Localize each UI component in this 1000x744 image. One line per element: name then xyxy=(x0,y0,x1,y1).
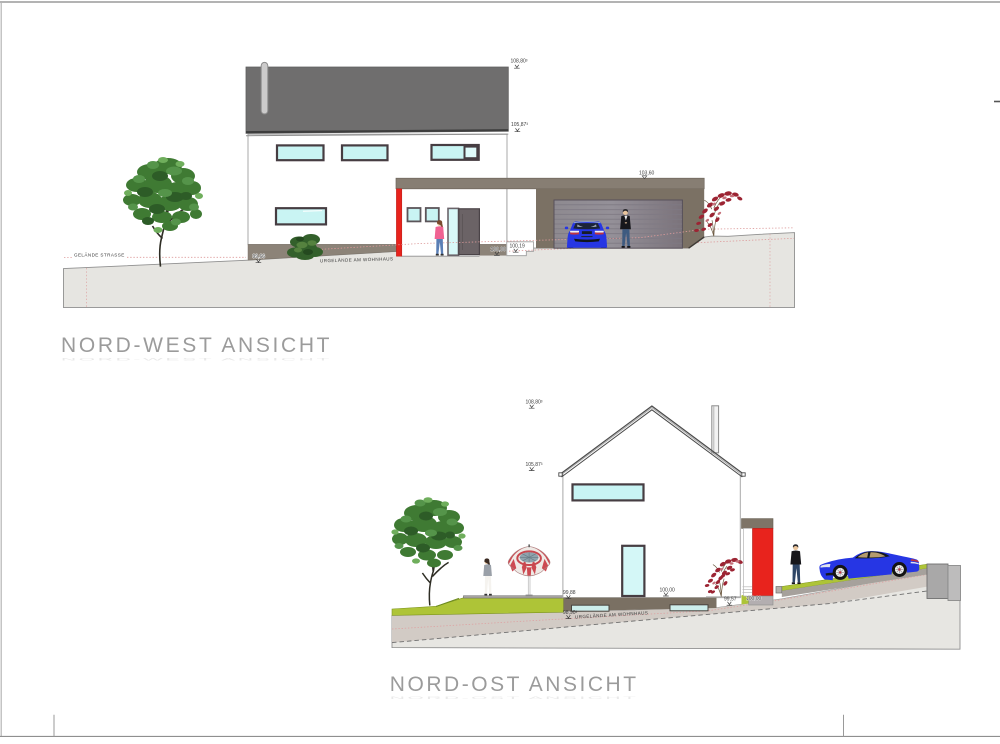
svg-text:100,00: 100,00 xyxy=(746,596,762,602)
svg-text:99,66: 99,66 xyxy=(253,254,266,260)
svg-text:105,87³: 105,87³ xyxy=(511,122,528,128)
svg-text:100,00: 100,00 xyxy=(491,247,507,253)
svg-text:100,19: 100,19 xyxy=(510,243,526,249)
svg-text:99,57: 99,57 xyxy=(724,597,737,603)
svg-text:105,87³: 105,87³ xyxy=(526,462,543,468)
svg-text:99,88: 99,88 xyxy=(563,590,576,596)
svg-text:108,80³: 108,80³ xyxy=(511,59,528,65)
svg-text:100,00: 100,00 xyxy=(660,587,676,593)
svg-text:NORD-WEST ANSICHT: NORD-WEST ANSICHT xyxy=(61,334,332,357)
svg-text:108,80³: 108,80³ xyxy=(526,399,543,405)
svg-text:GELÄNDE STRASSE: GELÄNDE STRASSE xyxy=(74,252,125,258)
svg-text:NORD-OST ANSICHT: NORD-OST ANSICHT xyxy=(390,696,639,700)
svg-text:NORD-WEST ANSICHT: NORD-WEST ANSICHT xyxy=(61,358,332,362)
svg-text:NORD-OST ANSICHT: NORD-OST ANSICHT xyxy=(390,673,639,696)
